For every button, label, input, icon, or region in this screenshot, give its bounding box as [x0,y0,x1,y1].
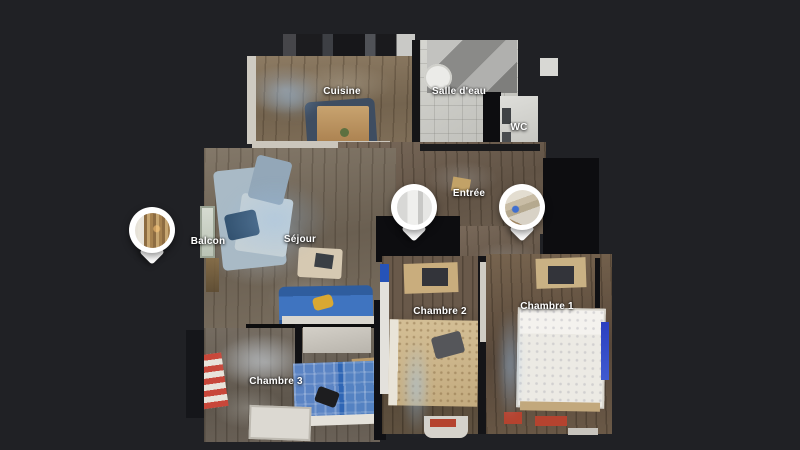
pano-pin-chambre[interactable] [499,184,545,244]
balcony-planks [206,258,219,292]
pano-pin-entree[interactable] [391,184,437,244]
room-label-salle-deau: Salle d'eau [432,87,486,97]
pin-ring [391,184,437,230]
ch2-bed [388,319,478,407]
room-label-wc: WC [510,123,527,133]
ch3-door-frame [295,324,302,364]
ch1-wall-line [595,258,600,308]
ch3-left-wall [186,330,204,418]
room-label-entree: Entrée [453,189,485,199]
kitchen-plant [340,128,349,137]
side-table-item [314,253,334,269]
ch2-desk-screen [422,268,448,286]
pano-thumbnail-entree-icon [397,190,432,225]
ch3-white-desk [303,327,371,353]
ch1-bed [516,307,606,409]
pano-pin-balcon[interactable] [129,207,175,267]
ch1-bed-foot-frame [520,401,600,411]
balcony-door [200,206,215,258]
kitchen-bath-wall [412,40,420,148]
room-label-sejour: Séjour [284,235,316,245]
kitchen-counter-left [247,56,256,144]
ch1-bottom-trim [568,428,598,435]
matterport-viewport[interactable]: Cuisine Salle d'eau WC Entrée Balcon Séj… [0,0,800,450]
ch1-desk-screen [548,266,574,284]
room-label-cuisine: Cuisine [323,87,361,97]
room-label-chambre-3: Chambre 3 [249,377,303,387]
ch2-window-strip [380,264,389,394]
bath-hall-wall [420,144,540,151]
boiler-box [540,58,558,76]
room-label-balcon: Balcon [191,237,226,247]
ch1-radiator-1 [504,412,522,424]
ch1-curtain-blue [601,322,609,380]
ch2-radiator [430,419,456,427]
ch3-closet [248,405,311,441]
pin-ring [499,184,545,230]
ch1-radiator-2 [535,416,567,426]
kitchen-island [317,106,369,146]
room-label-chambre-1: Chambre 1 [520,302,574,312]
pano-thumbnail-balcon-icon [135,213,170,248]
room-label-chambre-2: Chambre 2 [413,307,467,317]
hall-bedroom-wall-right [543,158,599,260]
pano-thumbnail-chambre-icon [505,190,540,225]
pin-ring [129,207,175,253]
